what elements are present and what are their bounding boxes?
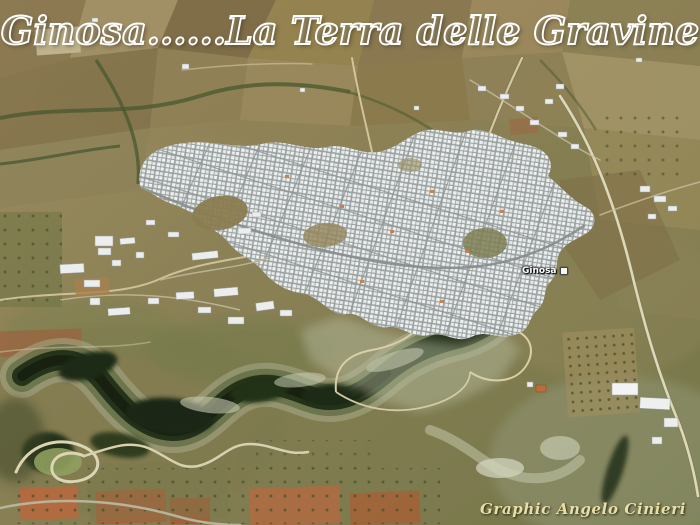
page-title: Ginosa......La Terra delle Gravine	[0, 8, 700, 53]
placemark-icon	[560, 267, 568, 275]
aerial-photo-canvas: Ginosa......La Terra delle Gravine Ginos…	[0, 0, 700, 525]
aerial-terrain-illustration	[0, 0, 700, 525]
place-label-ginosa: Ginosa	[522, 266, 568, 276]
credit-text: Graphic Angelo Cinieri	[480, 500, 686, 518]
place-label-text: Ginosa	[522, 266, 557, 276]
